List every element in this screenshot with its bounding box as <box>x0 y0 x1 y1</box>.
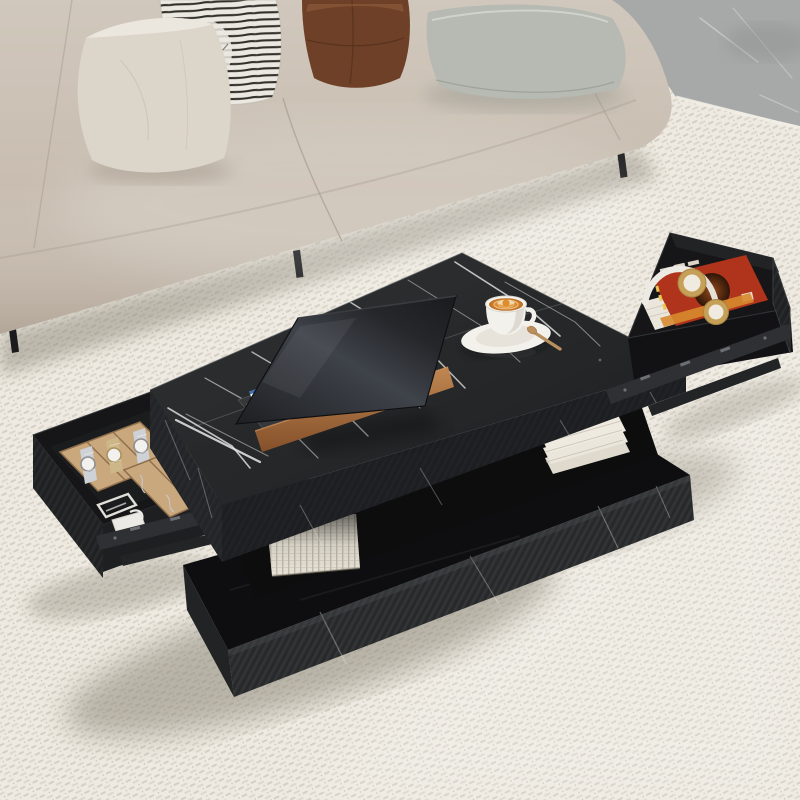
grey-cushion <box>425 4 626 111</box>
product-photo <box>0 0 800 800</box>
white-pillow <box>78 18 232 183</box>
brown-pillow <box>302 0 410 88</box>
